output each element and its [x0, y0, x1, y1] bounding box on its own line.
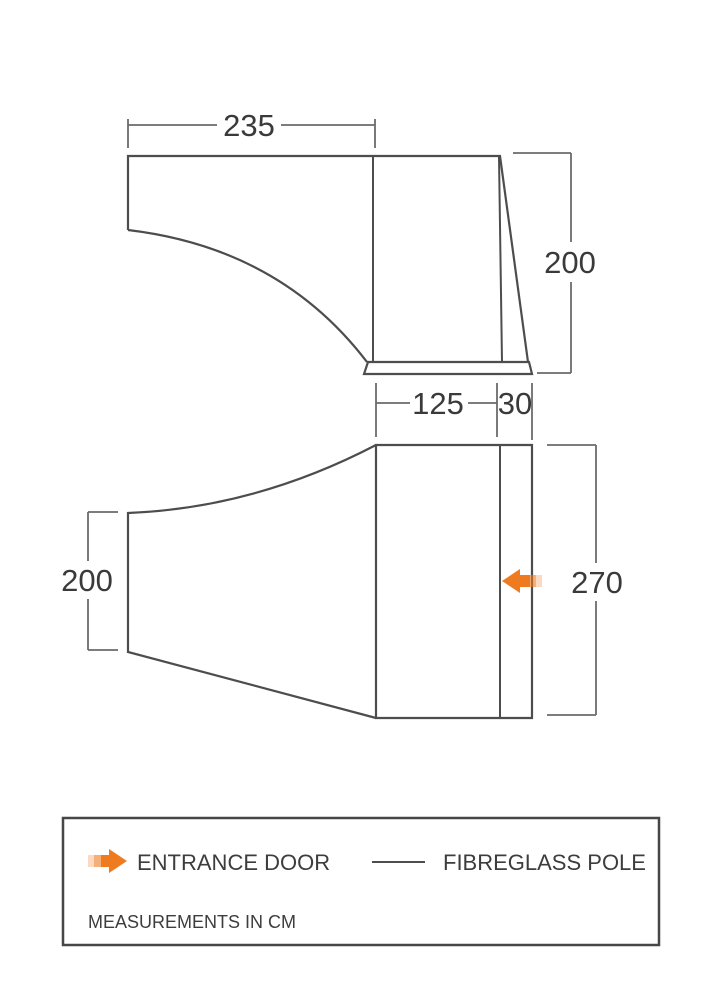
- side-view-outline: [128, 156, 528, 362]
- entrance-door-arrow-icon: [502, 569, 542, 593]
- plan-view: [128, 445, 542, 718]
- dim-label-plan-right-height: 270: [571, 565, 623, 600]
- plan-view-funnel: [128, 445, 376, 718]
- arrow-head: [502, 569, 520, 593]
- arrow-shaft-fade: [530, 575, 536, 587]
- diagram-canvas: 235 200 125 30 200 270: [0, 0, 727, 999]
- arrow-shaft-fade: [88, 855, 94, 867]
- side-view-ground-bar: [364, 362, 532, 374]
- dim-side-top-width: 235: [128, 108, 375, 148]
- dim-label-pole-offset: 30: [498, 386, 532, 421]
- fibreglass-pole-line: [499, 157, 502, 362]
- legend-entrance-door-label: ENTRANCE DOOR: [137, 850, 330, 875]
- legend-measurements-note: MEASUREMENTS IN CM: [88, 912, 296, 932]
- arrow-shaft: [519, 575, 530, 587]
- dim-plan-left-width: 200: [61, 512, 118, 650]
- dim-label-main-depth: 125: [412, 386, 464, 421]
- dim-label-side-top-width: 235: [223, 108, 275, 143]
- dim-plan-right-height: 270: [547, 445, 623, 715]
- legend: ENTRANCE DOOR FIBREGLASS POLE MEASUREMEN…: [63, 818, 659, 945]
- dim-middle-depths: 125 30: [376, 383, 532, 440]
- arrow-shaft-fade: [94, 855, 101, 867]
- dim-label-plan-left-width: 200: [61, 563, 113, 598]
- side-view-front-curve: [128, 230, 367, 362]
- legend-fibreglass-pole-label: FIBREGLASS POLE: [443, 850, 646, 875]
- dim-label-side-right-height: 200: [544, 245, 596, 280]
- arrow-shaft-fade: [536, 575, 542, 587]
- side-view: [128, 156, 532, 374]
- arrow-shaft: [101, 855, 110, 867]
- tent-dimensions-diagram: 235 200 125 30 200 270: [0, 0, 727, 999]
